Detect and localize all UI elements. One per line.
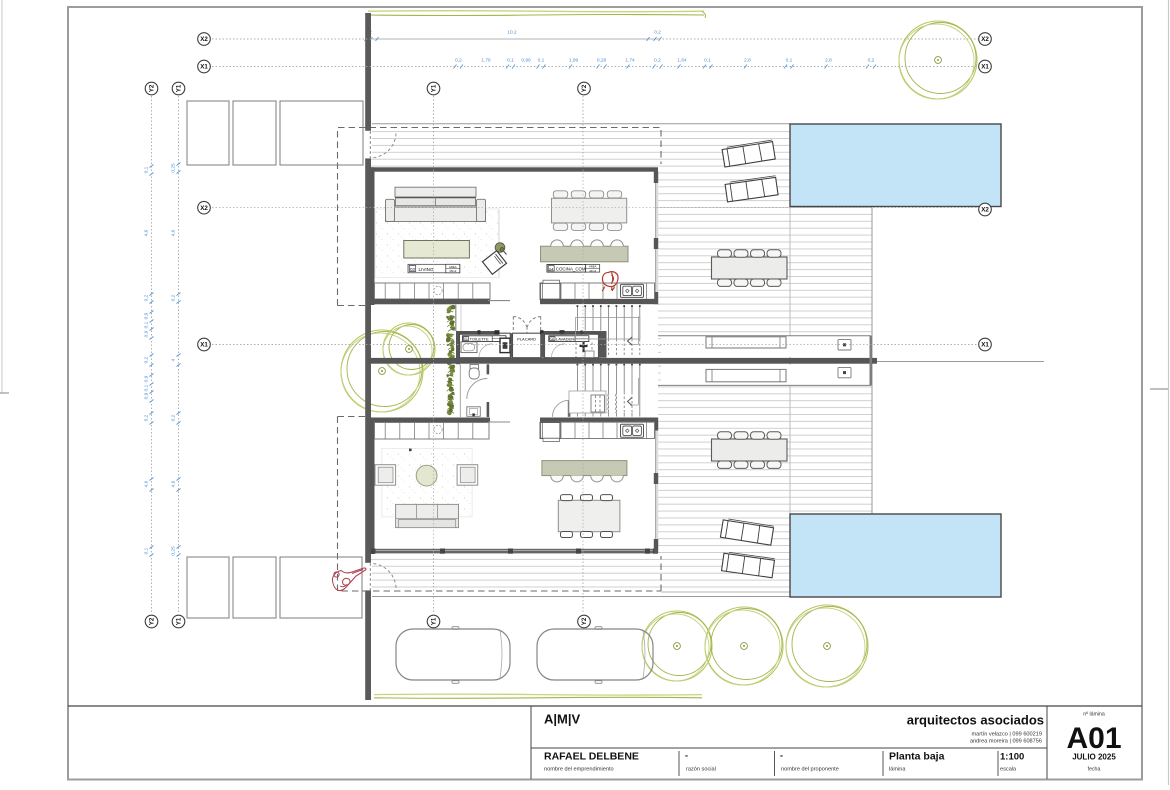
- svg-text:35m2: 35m2: [449, 269, 456, 273]
- svg-text:0,2: 0,2: [868, 58, 875, 64]
- svg-text:razón social: razón social: [686, 767, 716, 773]
- svg-text:X2: X2: [200, 36, 208, 43]
- svg-text:0,1: 0,1: [144, 166, 150, 173]
- svg-text:Y2: Y2: [149, 617, 156, 625]
- svg-text:1,99: 1,99: [569, 58, 579, 64]
- svg-text:0,1: 0,1: [507, 58, 514, 64]
- svg-text:0,28: 0,28: [597, 58, 607, 64]
- svg-text:0,2: 0,2: [455, 58, 462, 64]
- svg-text:X1: X1: [981, 64, 989, 71]
- svg-text:lámina: lámina: [889, 767, 906, 773]
- svg-text:1,74: 1,74: [625, 58, 635, 64]
- svg-text:A01: A01: [1066, 722, 1121, 755]
- svg-text:Planta baja: Planta baja: [889, 751, 945, 763]
- svg-text:0,2: 0,2: [654, 30, 661, 36]
- svg-text:0,25: 0,25: [171, 546, 177, 556]
- svg-text:X2: X2: [200, 205, 208, 212]
- svg-text:0,2: 0,2: [654, 58, 661, 64]
- svg-text:4,6: 4,6: [171, 229, 177, 236]
- svg-text:Y1: Y1: [176, 617, 183, 625]
- svg-text:42m2: 42m2: [589, 269, 596, 273]
- svg-text:0,1: 0,1: [538, 58, 545, 64]
- svg-text:10,2: 10,2: [507, 30, 517, 36]
- svg-text:Y1: Y1: [176, 84, 183, 92]
- svg-text:PLACARD: PLACARD: [517, 337, 536, 342]
- svg-text:1:100: 1:100: [1000, 752, 1024, 763]
- svg-text:0,9: 0,9: [144, 312, 150, 319]
- svg-text:X2: X2: [981, 207, 989, 214]
- svg-text:X1: X1: [200, 64, 208, 71]
- svg-text:Y1: Y1: [431, 617, 438, 625]
- svg-text:0,2: 0,2: [144, 356, 150, 363]
- svg-text:X1: X1: [981, 342, 989, 349]
- svg-text:0,2: 0,2: [144, 294, 150, 301]
- svg-text:Y1: Y1: [431, 84, 438, 92]
- svg-text:4,6: 4,6: [144, 480, 150, 487]
- svg-text:02: 02: [551, 337, 555, 341]
- svg-text:4,6: 4,6: [144, 229, 150, 236]
- svg-text:LAVADERO: LAVADERO: [556, 336, 577, 341]
- svg-text:0,2: 0,2: [171, 294, 177, 301]
- svg-text:2,8: 2,8: [744, 58, 751, 64]
- svg-text:0,9: 0,9: [144, 375, 150, 382]
- svg-text:arquitectos asociados: arquitectos asociados: [907, 713, 1044, 728]
- svg-text:-: -: [685, 751, 688, 761]
- svg-text:0,1: 0,1: [704, 58, 711, 64]
- svg-text:LIVING: LIVING: [419, 267, 434, 272]
- svg-text:nombre del proponente: nombre del proponente: [781, 767, 839, 773]
- svg-text:fecha: fecha: [1088, 767, 1101, 773]
- svg-text:0,99: 0,99: [521, 58, 531, 64]
- svg-text:martín velazco | 099 600219: martín velazco | 099 600219: [972, 732, 1043, 738]
- svg-text:1,64: 1,64: [677, 58, 687, 64]
- svg-text:2,8: 2,8: [825, 58, 832, 64]
- svg-text:0,1: 0,1: [786, 58, 793, 64]
- svg-text:4,6: 4,6: [171, 480, 177, 487]
- svg-text:0,9: 0,9: [144, 330, 150, 337]
- svg-text:4: 4: [171, 358, 177, 361]
- svg-text:X1: X1: [200, 342, 208, 349]
- svg-text:TOILETTE: TOILETTE: [470, 336, 489, 341]
- svg-text:04: 04: [549, 267, 553, 271]
- svg-text:Y2: Y2: [149, 84, 156, 92]
- svg-text:0,25: 0,25: [171, 163, 177, 173]
- svg-text:0,1: 0,1: [144, 547, 150, 554]
- svg-text:03: 03: [410, 267, 415, 272]
- svg-text:RAFAEL DELBENE: RAFAEL DELBENE: [544, 751, 639, 763]
- svg-text:escala: escala: [1000, 767, 1017, 773]
- svg-text:-: -: [780, 751, 783, 761]
- svg-text:0,1: 0,1: [144, 321, 150, 328]
- svg-text:0,1: 0,1: [144, 384, 150, 391]
- svg-text:0,2: 0,2: [171, 414, 177, 421]
- svg-text:01: 01: [464, 337, 468, 341]
- svg-text:andrea moreira | 099 608756: andrea moreira | 099 608756: [970, 739, 1042, 745]
- svg-text:1,76: 1,76: [481, 58, 491, 64]
- svg-text:nombre del emprendimiento: nombre del emprendimiento: [544, 767, 614, 773]
- svg-text:nº lámina: nº lámina: [1083, 712, 1105, 718]
- svg-text:Y2: Y2: [581, 84, 588, 92]
- svg-text:Y2: Y2: [581, 617, 588, 625]
- svg-text:A|M|V: A|M|V: [544, 712, 580, 727]
- svg-text:COCINA_COM: COCINA_COM: [556, 267, 586, 272]
- svg-text:0,2: 0,2: [144, 414, 150, 421]
- svg-text:X2: X2: [981, 36, 989, 43]
- svg-text:JULIO 2025: JULIO 2025: [1072, 753, 1116, 762]
- svg-text:0,9: 0,9: [144, 392, 150, 399]
